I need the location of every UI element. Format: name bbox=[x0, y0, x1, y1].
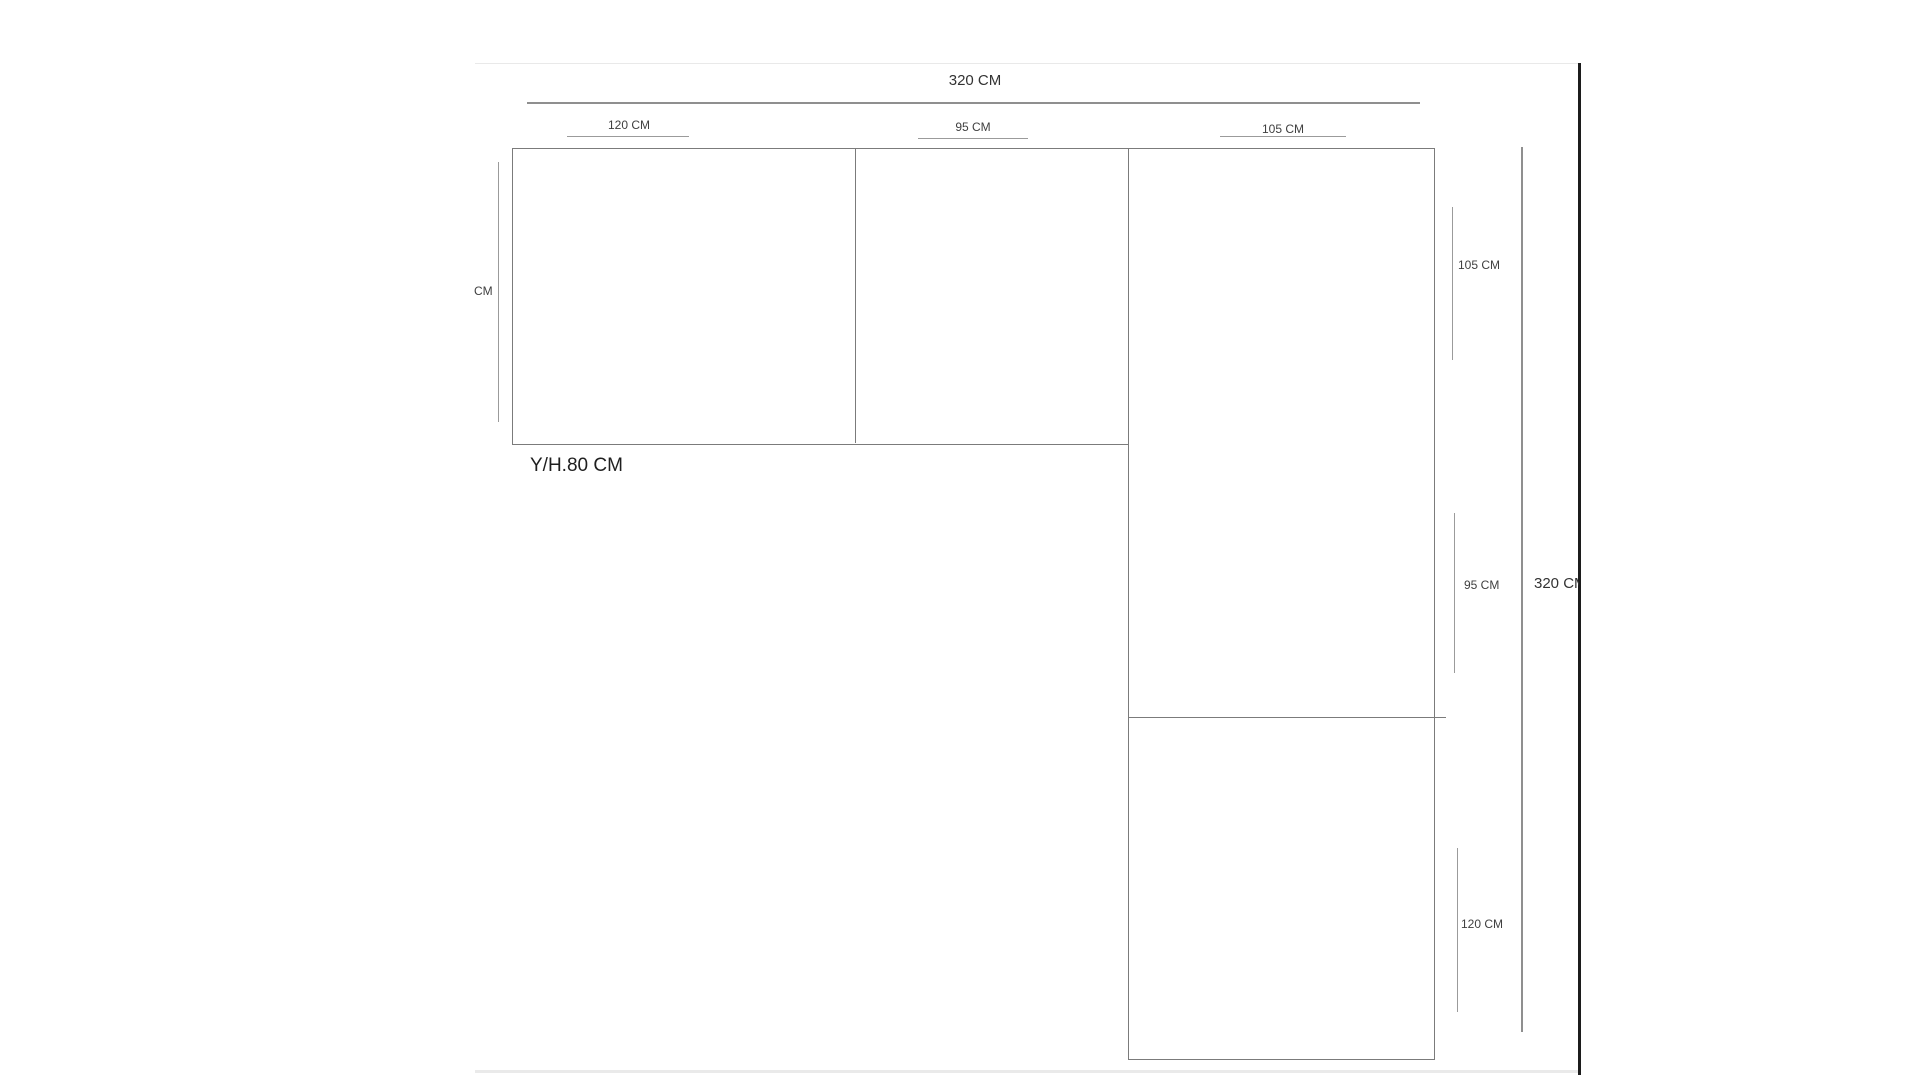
dim-label-left-depth-clipped: CM bbox=[474, 284, 493, 298]
dim-line-right-segment-105 bbox=[1452, 207, 1453, 360]
dim-line-right-segment-120 bbox=[1457, 848, 1458, 1012]
dim-line-left-depth bbox=[498, 162, 499, 422]
dim-line-top-segment-95 bbox=[918, 138, 1028, 139]
dim-line-top-segment-105 bbox=[1220, 136, 1346, 137]
page-edge-line bbox=[1578, 63, 1581, 1075]
dim-label-top-segment-1: 120 CM bbox=[570, 118, 688, 132]
height-note-label: Y/H.80 CM bbox=[530, 454, 623, 477]
dim-label-top-segment-3: 105 CM bbox=[1222, 122, 1344, 136]
dim-label-right-segment-3: 120 CM bbox=[1461, 917, 1503, 931]
sofa-top-row-divider-2 bbox=[1128, 149, 1129, 443]
dim-line-right-total bbox=[1521, 147, 1523, 1032]
dim-label-right-segment-1: 105 CM bbox=[1458, 258, 1500, 272]
dim-line-top-segment-120 bbox=[567, 136, 689, 137]
sofa-right-column-divider bbox=[1128, 717, 1446, 718]
sofa-top-row-divider-1 bbox=[855, 149, 856, 443]
dim-line-top-total bbox=[527, 102, 1420, 104]
dim-label-right-total: 320 CM bbox=[1534, 575, 1579, 592]
sofa-right-column-outline bbox=[1128, 148, 1435, 1060]
dim-label-right-segment-2: 95 CM bbox=[1464, 578, 1499, 592]
dim-line-right-segment-95 bbox=[1454, 513, 1455, 673]
dim-label-top-segment-2: 95 CM bbox=[918, 120, 1028, 134]
dim-label-top-total: 320 CM bbox=[930, 72, 1020, 89]
